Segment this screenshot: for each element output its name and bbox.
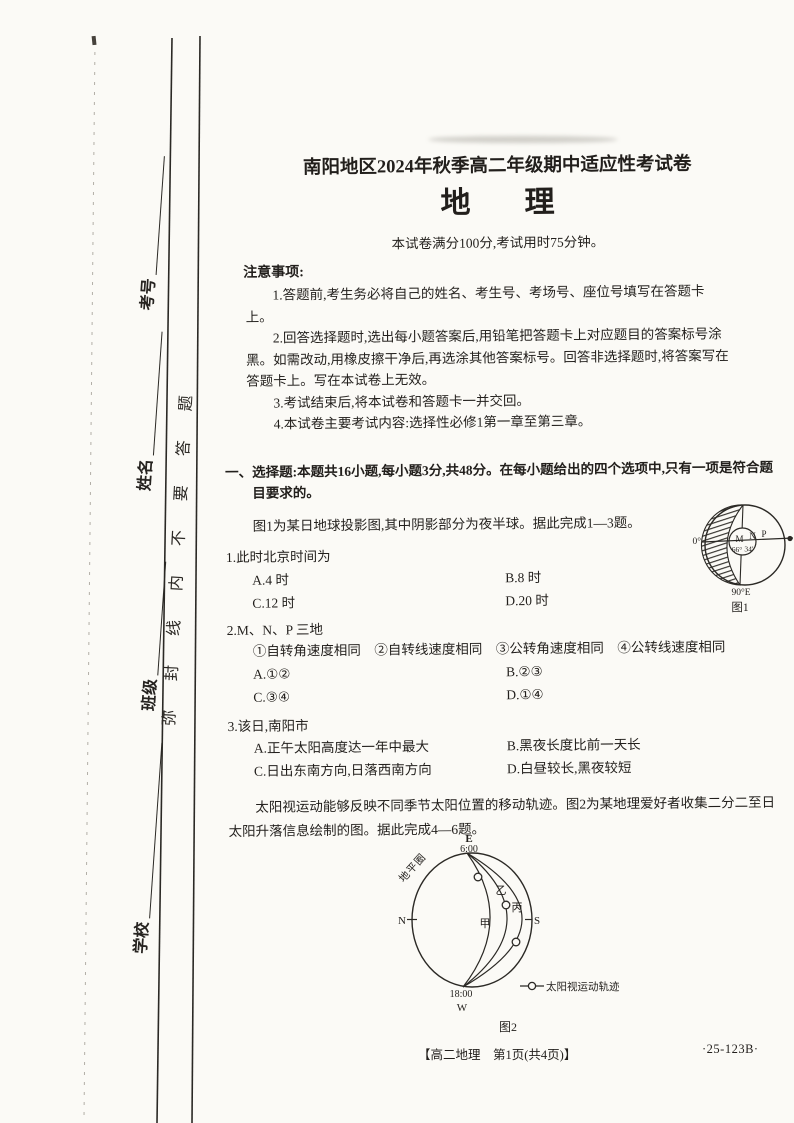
exam-title: 南阳地区2024年秋季高二年级期中适应性考试卷	[222, 151, 772, 182]
notice-item-4: 4.本试卷主要考试内容:选择性必修1第一章至第三章。	[247, 409, 731, 435]
question-2: 2.M、N、P 三地 ①自转角速度相同 ②自转线速度相同 ③公转角速度相同 ④公…	[227, 614, 778, 708]
point-p-dot	[787, 536, 792, 541]
option-b: B.②③	[506, 657, 777, 683]
figure-1-caption: 图1	[712, 599, 768, 615]
option-c: C.日出东南方向,日落西南方向	[254, 757, 507, 782]
option-d: D.①④	[506, 680, 777, 706]
label-90e-meridian: 90°E	[731, 587, 750, 598]
question-2-options: A.①② B.②③ C.③④ D.①④	[227, 657, 777, 708]
figure-2-caption: 图2	[480, 1018, 536, 1035]
label-sunset-time: 18:00	[450, 989, 473, 1000]
field-label: 学校	[127, 921, 153, 955]
field-label: 姓名	[130, 458, 156, 492]
seal-line-outer	[192, 36, 200, 1123]
sun-marker-jia	[474, 873, 482, 881]
scan-mark	[92, 36, 97, 45]
label-latitude-66: 66°	[732, 545, 743, 554]
option-c: C.12 时	[252, 589, 505, 614]
option-a: A.①②	[253, 660, 506, 685]
subject-char: 地	[440, 187, 470, 220]
label-south: S	[534, 915, 540, 927]
exam-info-line: 本试卷满分100分,考试用时75分钟。	[223, 230, 773, 257]
exam-page-content: 南阳地区2024年秋季高二年级期中适应性考试卷 地理 本试卷满分100分,考试用…	[222, 141, 779, 844]
label-point-m: M	[735, 534, 743, 544]
option-c: C.③④	[253, 683, 506, 708]
option-d: D.白昼较长,黑夜较短	[507, 755, 778, 781]
option-a: A.正午太阳高度达一年中最大	[254, 734, 507, 759]
label-west: W	[457, 1002, 468, 1014]
option-b: B.黑夜长度比前一天长	[507, 732, 778, 758]
perforation-dotted-line	[84, 42, 95, 1118]
sun-path-arc-bing	[463, 853, 522, 987]
question-3: 3.该日,南阳市 A.正午太阳高度达一年中最大 B.黑夜长度比前一天长 C.日出…	[227, 710, 778, 783]
label-point-n: N	[749, 531, 756, 541]
question-group-intro-1: 图1为某日地球投影图,其中阴影部分为夜半球。据此完成1—3题。	[226, 511, 681, 537]
legend-marker	[528, 982, 535, 989]
notice-block: 注意事项: 1.答题前,考生务必将自己的姓名、考生号、考场号、座位号填写在答题卡…	[245, 258, 731, 436]
label-zero-degree: 0°	[692, 536, 701, 547]
label-arc-jia: 甲	[480, 918, 491, 930]
label-sunrise-time: 6:00	[460, 844, 478, 855]
footer-page-info: 【高二地理 第1页(共4页)】	[418, 1044, 576, 1063]
field-label: 考号	[133, 277, 159, 311]
label-point-p: P	[761, 529, 766, 539]
subject-char: 理	[524, 186, 554, 219]
subject-title: 地理	[222, 181, 772, 226]
sun-marker-bing	[512, 938, 520, 946]
figure-2-sun-path-diagram: E 6:00 18:00 W N S 地平圈 甲 乙 丙 太阳视运动轨迹	[390, 832, 622, 1020]
question-3-options: A.正午太阳高度达一年中最大 B.黑夜长度比前一天长 C.日出东南方向,日落西南…	[228, 732, 778, 783]
figure-1-earth-projection: 0° M N P 66° 34′ 90°E	[686, 496, 794, 600]
footer-paper-code: ·25-123B·	[702, 1042, 759, 1057]
label-arc-yi: 乙	[496, 884, 507, 897]
notice-item-1: 1.答题前,考生务必将自己的姓名、考生号、考场号、座位号填写在答题卡上。	[245, 280, 729, 328]
subject-gap	[471, 212, 525, 213]
legend-text: 太阳视运动轨迹	[546, 980, 620, 993]
horizon-circle	[412, 853, 532, 987]
option-a: A.4 时	[252, 566, 505, 591]
sun-marker-yi	[502, 901, 510, 909]
label-arc-bing: 丙	[512, 902, 523, 914]
label-north: N	[398, 915, 406, 927]
label-latitude-34: 34′	[744, 545, 754, 554]
notice-item-2: 2.回答选择题时,选出每小题答案后,用铅笔把答题卡上对应题目的答案标号涂黑。如需…	[246, 323, 731, 392]
